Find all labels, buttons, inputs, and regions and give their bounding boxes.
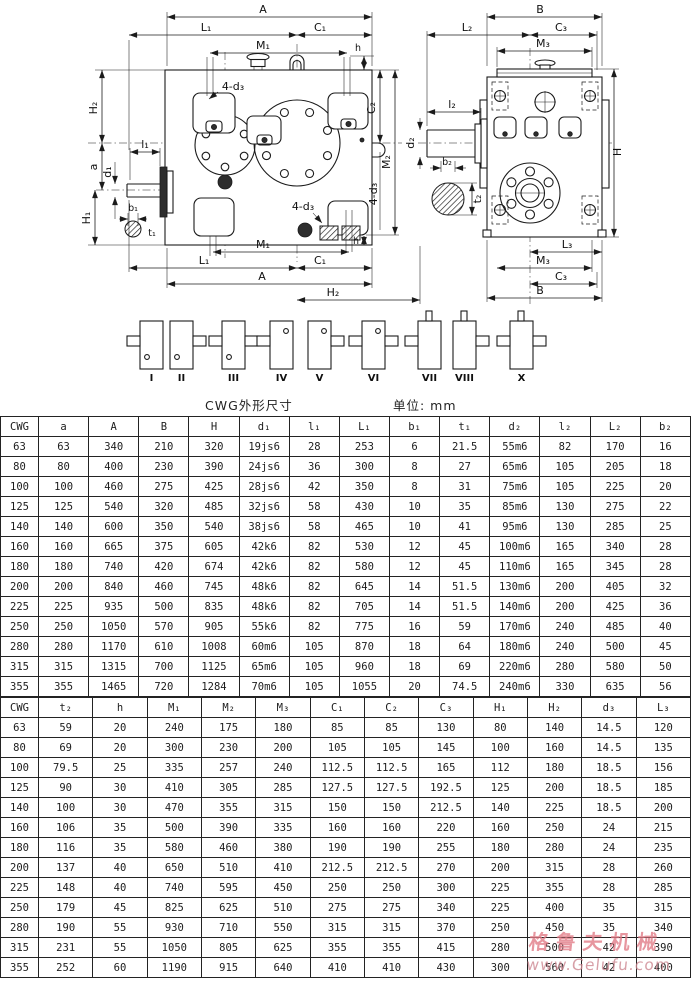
dim-l2: l₂ <box>448 98 455 111</box>
table-cell: 930 <box>147 918 201 938</box>
table-cell: 410 <box>256 858 310 878</box>
table-cell: 58 <box>289 497 339 517</box>
table-cell: 42 <box>289 477 339 497</box>
table-header-row: CWGaABHd₁l₁L₁b₁t₁d₂l₂L₂b₂ <box>1 417 691 437</box>
table-title: CWG外形尺寸 <box>205 395 293 414</box>
table-cell: 82 <box>289 537 339 557</box>
table-cell: 95m6 <box>490 517 540 537</box>
table-cell: 100 <box>1 477 39 497</box>
table-cell: 14 <box>389 577 439 597</box>
assembly-form-label: II <box>178 373 185 384</box>
table-cell: 59 <box>39 718 93 738</box>
table-cell: 175 <box>201 718 255 738</box>
table-cell: 112.5 <box>310 758 364 778</box>
table-cell: 90 <box>39 778 93 798</box>
table-cell: 200 <box>256 738 310 758</box>
table-cell: 315 <box>39 657 89 677</box>
table-cell: 400 <box>89 457 139 477</box>
table-cell: 160 <box>310 818 364 838</box>
table-cell: 250 <box>1 617 39 637</box>
table-cell: 148 <box>39 878 93 898</box>
right-view: B L₂ C₃ M₃ l₂ d₂ b₂ t₂ H <box>404 3 624 306</box>
table-cell: 160 <box>1 537 39 557</box>
table-cell: 130m6 <box>490 577 540 597</box>
table-cell: 345 <box>590 557 640 577</box>
table-cell: 280 <box>540 657 590 677</box>
table-cell: 305 <box>201 778 255 798</box>
dim-A-top: A <box>259 3 267 16</box>
table-cell: 12 <box>389 557 439 577</box>
table-cell: 100m6 <box>490 537 540 557</box>
table-cell: 42k6 <box>239 537 289 557</box>
table-cell: 1170 <box>89 637 139 657</box>
table-cell: 63 <box>1 437 39 457</box>
table-cell: 350 <box>339 477 389 497</box>
table-cell: 106 <box>39 818 93 838</box>
table-cell: 125 <box>39 497 89 517</box>
table-cell: 36 <box>289 457 339 477</box>
table-cell: 55 <box>93 938 147 958</box>
dim-C3-bottom: C₃ <box>555 270 567 283</box>
table-cell: 58 <box>289 517 339 537</box>
table-row: 636334021032019js628253621.555m68217016 <box>1 437 691 457</box>
table-cell: 127.5 <box>310 778 364 798</box>
table-row: 20013740650510410212.5212.52702003152826… <box>1 858 691 878</box>
table-cell: 69 <box>440 657 490 677</box>
column-header: t₁ <box>440 417 490 437</box>
table-cell: 185 <box>636 778 690 798</box>
table-cell: 530 <box>339 537 389 557</box>
table-row: 35525260119091564041041043030056042400 <box>1 958 691 978</box>
table-cell: 137 <box>39 858 93 878</box>
table-cell: 1055 <box>339 677 389 697</box>
table-cell: 580 <box>339 557 389 577</box>
table-cell: 28js6 <box>239 477 289 497</box>
table-cell: 550 <box>256 918 310 938</box>
table-cell: 220 <box>419 818 473 838</box>
table-cell: 22 <box>640 497 690 517</box>
table-cell: 65m6 <box>490 457 540 477</box>
table-row: 3153151315700112565m61059601869220m62805… <box>1 657 691 677</box>
column-header: l₁ <box>289 417 339 437</box>
table-row: 2251484074059545025025030022535528285 <box>1 878 691 898</box>
table-cell: 250 <box>310 878 364 898</box>
table-cell: 540 <box>89 497 139 517</box>
table-cell: 38js6 <box>239 517 289 537</box>
column-header: C₃ <box>419 698 473 718</box>
table-row: 2801905593071055031531537025045035340 <box>1 918 691 938</box>
table-cell: 231 <box>39 938 93 958</box>
table-cell: 275 <box>364 898 418 918</box>
table-caption: CWG外形尺寸 单位: mm <box>0 392 691 416</box>
table-cell: 425 <box>590 597 640 617</box>
table-cell: 6 <box>389 437 439 457</box>
table-cell: 18 <box>640 457 690 477</box>
table-cell: 140 <box>1 798 39 818</box>
dim-l1: l₁ <box>141 138 148 151</box>
table-cell: 235 <box>636 838 690 858</box>
table-cell: 225 <box>527 798 581 818</box>
table-cell: 335 <box>147 758 201 778</box>
table-cell: 8 <box>389 457 439 477</box>
table-cell: 240m6 <box>490 677 540 697</box>
table-cell: 340 <box>419 898 473 918</box>
table-cell: 300 <box>339 457 389 477</box>
table-row: 10079.525335257240112.5112.516511218018.… <box>1 758 691 778</box>
table-cell: 190 <box>310 838 364 858</box>
table-cell: 25 <box>93 758 147 778</box>
dim-M3-bottom: M₃ <box>536 254 550 267</box>
table-row: 1259030410305285127.5127.5192.512520018.… <box>1 778 691 798</box>
table-cell: 130 <box>419 718 473 738</box>
column-header: M₃ <box>256 698 310 718</box>
dim-d1: d₁ <box>101 166 114 177</box>
table-row: 808040023039024js63630082765m610520518 <box>1 457 691 477</box>
table-cell: 64 <box>440 637 490 657</box>
table-cell: 200 <box>540 597 590 617</box>
assembly-form-label: VI <box>368 373 379 384</box>
table-cell: 150 <box>310 798 364 818</box>
table-cell: 165 <box>419 758 473 778</box>
table-cell: 8 <box>389 477 439 497</box>
table-cell: 935 <box>89 597 139 617</box>
table-cell: 390 <box>636 938 690 958</box>
table-cell: 35 <box>582 898 636 918</box>
dim-t1: t₁ <box>148 228 156 239</box>
table-cell: 100 <box>1 758 39 778</box>
table-cell: 775 <box>339 617 389 637</box>
dim-d2: d₂ <box>404 137 417 148</box>
table-cell: 355 <box>39 677 89 697</box>
table-cell: 24js6 <box>239 457 289 477</box>
table-cell: 665 <box>89 537 139 557</box>
table-cell: 610 <box>139 637 189 657</box>
dim-M2: M₂ <box>380 155 393 169</box>
table-cell: 280 <box>1 918 39 938</box>
table-cell: 24 <box>582 838 636 858</box>
assembly-form-label: V <box>316 373 324 384</box>
table-cell: 55m6 <box>490 437 540 457</box>
table-cell: 200 <box>1 577 39 597</box>
table-cell: 160 <box>1 818 39 838</box>
table-cell: 160 <box>473 818 527 838</box>
table-cell: 450 <box>256 878 310 898</box>
table-cell: 250 <box>527 818 581 838</box>
dimension-table-2: CWGt₂hM₁M₂M₃C₁C₂C₃H₁H₂d₃L₃63592024017518… <box>0 697 691 978</box>
table-cell: 350 <box>139 517 189 537</box>
table-cell: 915 <box>201 958 255 978</box>
table-cell: 225 <box>590 477 640 497</box>
table-cell: 280 <box>527 838 581 858</box>
table-cell: 315 <box>364 918 418 938</box>
table-cell: 640 <box>256 958 310 978</box>
table-cell: 74.5 <box>440 677 490 697</box>
table-cell: 260 <box>636 858 690 878</box>
table-cell: 200 <box>1 858 39 878</box>
table-cell: 60m6 <box>239 637 289 657</box>
table-cell: 465 <box>339 517 389 537</box>
table-cell: 16 <box>389 617 439 637</box>
table-cell: 42 <box>582 938 636 958</box>
table-cell: 510 <box>201 858 255 878</box>
dim-a-left: a <box>87 164 100 171</box>
table-cell: 10 <box>389 497 439 517</box>
table-cell: 250 <box>39 617 89 637</box>
table-cell: 252 <box>39 958 93 978</box>
dimension-table-1: CWGaABHd₁l₁L₁b₁t₁d₂l₂L₂b₂636334021032019… <box>0 416 691 697</box>
table-cell: 110m6 <box>490 557 540 577</box>
table-cell: 116 <box>39 838 93 858</box>
table-cell: 180 <box>1 557 39 577</box>
table-cell: 285 <box>256 778 310 798</box>
table-cell: 400 <box>527 898 581 918</box>
table-cell: 160 <box>39 537 89 557</box>
table-cell: 200 <box>39 577 89 597</box>
table-cell: 50 <box>640 657 690 677</box>
dim-4d3-upper: 4-d₃ <box>222 80 244 93</box>
table-cell: 870 <box>339 637 389 657</box>
table-cell: 275 <box>590 497 640 517</box>
table-cell: 21.5 <box>440 437 490 457</box>
table-cell: 315 <box>310 918 364 938</box>
table-cell: 82 <box>289 557 339 577</box>
table-cell: 540 <box>189 517 239 537</box>
table-cell: 1125 <box>189 657 239 677</box>
table-cell: 595 <box>201 878 255 898</box>
table-cell: 500 <box>527 938 581 958</box>
column-header: a <box>39 417 89 437</box>
column-header: B <box>139 417 189 437</box>
table-cell: 45 <box>440 537 490 557</box>
table-cell: 180m6 <box>490 637 540 657</box>
table-cell: 240 <box>256 758 310 778</box>
table-cell: 165 <box>540 557 590 577</box>
table-cell: 40 <box>93 858 147 878</box>
table-cell: 835 <box>189 597 239 617</box>
table-cell: 674 <box>189 557 239 577</box>
table-cell: 275 <box>310 898 364 918</box>
table-cell: 605 <box>189 537 239 557</box>
unit-label: 单位: mm <box>393 395 457 414</box>
table-cell: 710 <box>201 918 255 938</box>
column-header: CWG <box>1 417 39 437</box>
table-cell: 80 <box>1 457 39 477</box>
assembly-form-label: X <box>518 373 526 384</box>
table-cell: 18.5 <box>582 778 636 798</box>
technical-drawing: A L₁ C₁ M₁ h 4-d₃ H₂ a H₁ d₁ <box>0 0 691 392</box>
table-cell: 650 <box>147 858 201 878</box>
table-cell: 340 <box>636 918 690 938</box>
table-cell: 320 <box>139 497 189 517</box>
table-cell: 485 <box>189 497 239 517</box>
table-cell: 330 <box>540 677 590 697</box>
table-cell: 41 <box>440 517 490 537</box>
table-cell: 905 <box>189 617 239 637</box>
table-cell: 180 <box>256 718 310 738</box>
dim-H2-bottom: H₂ <box>327 286 340 299</box>
table-cell: 390 <box>189 457 239 477</box>
table-cell: 225 <box>1 878 39 898</box>
dim-C1-top: C₁ <box>314 21 326 34</box>
table-cell: 20 <box>93 718 147 738</box>
table-row: 2802801170610100860m61058701864180m62405… <box>1 637 691 657</box>
table-cell: 140 <box>1 517 39 537</box>
table-cell: 48k6 <box>239 577 289 597</box>
table-cell: 320 <box>189 437 239 457</box>
dim-C1-bottom: C₁ <box>314 254 326 267</box>
table-cell: 415 <box>419 938 473 958</box>
table-cell: 105 <box>310 738 364 758</box>
table-cell: 1465 <box>89 677 139 697</box>
table-cell: 18.5 <box>582 798 636 818</box>
table-cell: 410 <box>310 958 364 978</box>
column-header: t₂ <box>39 698 93 718</box>
dim-L2: L₂ <box>462 21 473 34</box>
table-cell: 14 <box>389 597 439 617</box>
table-cell: 27 <box>440 457 490 477</box>
table-cell: 740 <box>89 557 139 577</box>
table-row: 12512554032048532js658430103585m61302752… <box>1 497 691 517</box>
table-cell: 85 <box>310 718 364 738</box>
table-cell: 180 <box>473 838 527 858</box>
table-cell: 24 <box>582 818 636 838</box>
table-cell: 1284 <box>189 677 239 697</box>
table-cell: 240 <box>147 718 201 738</box>
table-cell: 56 <box>640 677 690 697</box>
table-cell: 200 <box>636 798 690 818</box>
table-cell: 212.5 <box>419 798 473 818</box>
table-cell: 55k6 <box>239 617 289 637</box>
table-cell: 20 <box>640 477 690 497</box>
table-cell: 1050 <box>147 938 201 958</box>
table-cell: 85m6 <box>490 497 540 517</box>
table-cell: 28 <box>582 858 636 878</box>
table-cell: 625 <box>201 898 255 918</box>
table-cell: 430 <box>339 497 389 517</box>
table-cell: 270 <box>419 858 473 878</box>
table-cell: 200 <box>527 778 581 798</box>
table-cell: 275 <box>139 477 189 497</box>
table-cell: 205 <box>590 457 640 477</box>
table-row: 14014060035054038js658465104195m61302852… <box>1 517 691 537</box>
table-row: 16016066537560542k6825301245100m61653402… <box>1 537 691 557</box>
table-row: 63592024017518085851308014014.5120 <box>1 718 691 738</box>
table-cell: 105 <box>540 477 590 497</box>
dim-t2: t₂ <box>471 195 484 204</box>
table-cell: 400 <box>636 958 690 978</box>
table-cell: 1008 <box>189 637 239 657</box>
table-cell: 745 <box>189 577 239 597</box>
table-cell: 212.5 <box>310 858 364 878</box>
table-cell: 315 <box>1 657 39 677</box>
table-cell: 165 <box>540 537 590 557</box>
table-cell: 160 <box>527 738 581 758</box>
assembly-form-label: VII <box>422 373 437 384</box>
table-cell: 315 <box>527 858 581 878</box>
table-cell: 180 <box>1 838 39 858</box>
table-cell: 82 <box>289 597 339 617</box>
table-cell: 35 <box>93 838 147 858</box>
table-cell: 28 <box>640 557 690 577</box>
table-cell: 63 <box>39 437 89 457</box>
table-cell: 250 <box>473 918 527 938</box>
table-cell: 100 <box>39 798 93 818</box>
table-cell: 10 <box>389 517 439 537</box>
table-cell: 253 <box>339 437 389 457</box>
table-cell: 425 <box>189 477 239 497</box>
table-cell: 25 <box>640 517 690 537</box>
table-cell: 805 <box>201 938 255 958</box>
table-cell: 42 <box>582 958 636 978</box>
column-header: H₂ <box>527 698 581 718</box>
assembly-form-label: I <box>150 373 154 384</box>
table-cell: 355 <box>310 938 364 958</box>
table-cell: 85 <box>364 718 418 738</box>
table-cell: 112 <box>473 758 527 778</box>
table-row: 1801163558046038019019025518028024235 <box>1 838 691 858</box>
dim-h-bottom: h <box>353 236 359 247</box>
table-cell: 257 <box>201 758 255 778</box>
table-cell: 225 <box>473 878 527 898</box>
table-cell: 225 <box>1 597 39 617</box>
assembly-form-label: III <box>228 373 239 384</box>
table-cell: 375 <box>139 537 189 557</box>
table-cell: 740 <box>147 878 201 898</box>
column-header: d₂ <box>490 417 540 437</box>
table-header-row: CWGt₂hM₁M₂M₃C₁C₂C₃H₁H₂d₃L₃ <box>1 698 691 718</box>
table-cell: 340 <box>89 437 139 457</box>
column-header: M₂ <box>201 698 255 718</box>
dim-B-bottom: B <box>536 284 544 297</box>
table-cell: 215 <box>636 818 690 838</box>
dim-L3: L₃ <box>562 238 573 251</box>
table-cell: 460 <box>139 577 189 597</box>
table-cell: 140m6 <box>490 597 540 617</box>
table-cell: 250 <box>1 898 39 918</box>
column-header: d₁ <box>239 417 289 437</box>
dim-H1-left: H₁ <box>80 212 93 225</box>
table-cell: 500 <box>139 597 189 617</box>
column-header: b₂ <box>640 417 690 437</box>
table-cell: 170m6 <box>490 617 540 637</box>
table-cell: 315 <box>636 898 690 918</box>
table-cell: 300 <box>473 958 527 978</box>
table-cell: 16 <box>640 437 690 457</box>
table-row: 80692030023020010510514510016014.5135 <box>1 738 691 758</box>
table-cell: 35 <box>582 918 636 938</box>
column-header: L₁ <box>339 417 389 437</box>
dim-4d3-right: 4-d₃ <box>367 183 380 205</box>
column-header: C₂ <box>364 698 418 718</box>
table-cell: 65m6 <box>239 657 289 677</box>
table-cell: 14.5 <box>582 718 636 738</box>
table-cell: 340 <box>590 537 640 557</box>
table-cell: 380 <box>256 838 310 858</box>
table-cell: 48k6 <box>239 597 289 617</box>
table-cell: 390 <box>201 818 255 838</box>
table-cell: 1050 <box>89 617 139 637</box>
table-cell: 70m6 <box>239 677 289 697</box>
table-row: 20020084046074548k6826451451.5130m620040… <box>1 577 691 597</box>
table-cell: 635 <box>590 677 640 697</box>
table-cell: 100 <box>39 477 89 497</box>
dim-H2-left: H₂ <box>87 102 100 115</box>
table-cell: 28 <box>582 878 636 898</box>
table-cell: 700 <box>139 657 189 677</box>
column-header: l₂ <box>540 417 590 437</box>
table-cell: 14.5 <box>582 738 636 758</box>
dim-M1-bottom: M₁ <box>256 238 270 251</box>
